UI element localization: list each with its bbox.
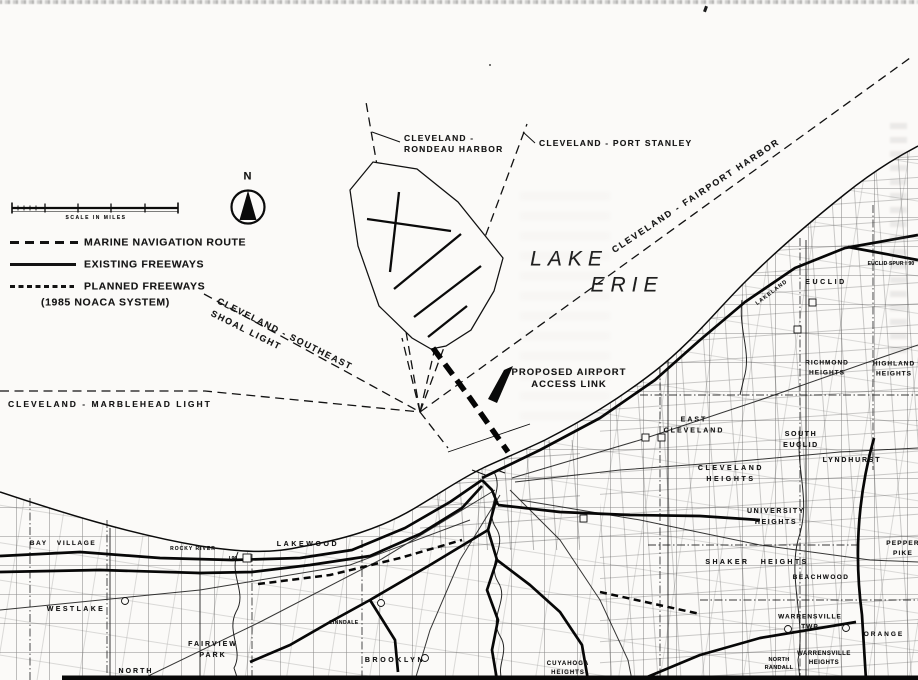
scan-edge-bar xyxy=(62,676,918,680)
place-label-warrensville-twp: WARRENSVILLE TWP xyxy=(778,613,842,632)
legend-marine-line-sample xyxy=(10,241,78,244)
access-link-label: PROPOSED AIRPORT ACCESS LINK xyxy=(512,367,627,391)
proposed-airport-island xyxy=(350,162,503,349)
route-label-rondeau: CLEVELAND - RONDEAU HARBOR xyxy=(404,133,503,154)
place-label-east-cleveland: EAST CLEVELAND xyxy=(664,416,725,437)
place-label-linndale: LINNDALE xyxy=(329,620,358,626)
place-label-university-heights: UNIVERSITY HEIGHTS xyxy=(747,506,805,528)
place-label-cuyahoga-heights: CUYAHOGA HEIGHTS xyxy=(547,660,589,678)
scale-bar xyxy=(12,203,178,214)
north-arrow xyxy=(232,191,265,224)
place-label-lakewood: LAKEWOOD xyxy=(277,541,339,549)
place-label-orange: ORANGE xyxy=(864,631,905,639)
access-link-arrow xyxy=(488,366,513,403)
place-label-cleveland-heights: CLEVELAND HEIGHTS xyxy=(698,463,764,485)
scanned-map-page: SCALE IN MILES N MARINE NAVIGATION ROUTE… xyxy=(0,0,918,680)
breakwater xyxy=(448,424,530,452)
i90-badge-label: I 90 xyxy=(229,556,237,562)
place-label-euclid: EUCLID xyxy=(805,279,847,287)
euclid-spur-label: EUCLID SPUR I 90 xyxy=(868,261,915,267)
place-label-fairview-park: FAIRVIEW PARK xyxy=(188,639,238,661)
place-label-bay-village: BAY VILLAGE xyxy=(30,540,97,548)
lake-name-word2: ERIE xyxy=(590,272,663,297)
place-label-rocky-river: ROCKY RIVER xyxy=(170,546,216,552)
route-label-marblehead: CLEVELAND - MARBLEHEAD LIGHT xyxy=(8,399,212,409)
legend-existing-line-sample xyxy=(10,263,76,266)
place-label-warrensville-heights: WARRENSVILLE HEIGHTS xyxy=(797,650,851,668)
lake-name-word1: LAKE xyxy=(530,246,608,271)
place-label-richmond-heights: RICHMOND HEIGHTS xyxy=(805,359,849,378)
legend-planned-note: (1985 NOACA SYSTEM) xyxy=(41,297,170,310)
legend-planned-label: PLANNED FREEWAYS xyxy=(84,281,205,294)
place-label-north-randall: NORTH RANDALL xyxy=(765,656,794,672)
place-label-south-euclid: SOUTH EUCLID xyxy=(783,429,819,451)
place-label-highland-heights: HIGHLAND HEIGHTS xyxy=(873,360,915,379)
scale-caption: SCALE IN MILES xyxy=(65,215,126,221)
scan-speck-mid xyxy=(489,64,491,66)
map-linework xyxy=(0,0,918,680)
place-label-westlake: WESTLAKE xyxy=(47,606,105,614)
legend-planned-line-sample xyxy=(10,285,74,288)
route-label-port-stanley: CLEVELAND - PORT STANLEY xyxy=(539,138,692,148)
place-label-north-olmsted: NORTH xyxy=(119,668,154,676)
place-label-pepper-pike: PEPPER PIKE xyxy=(886,539,918,559)
legend-existing-label: EXISTING FREEWAYS xyxy=(84,259,204,272)
north-label: N xyxy=(244,170,253,183)
legend-marine-label: MARINE NAVIGATION ROUTE xyxy=(84,237,246,250)
place-label-shaker-heights: SHAKER HEIGHTS xyxy=(705,559,808,567)
place-label-brooklyn: BROOKLYN xyxy=(365,657,425,665)
place-label-beachwood: BEACHWOOD xyxy=(793,574,850,582)
place-label-lyndhurst: LYNDHURST xyxy=(823,457,882,465)
